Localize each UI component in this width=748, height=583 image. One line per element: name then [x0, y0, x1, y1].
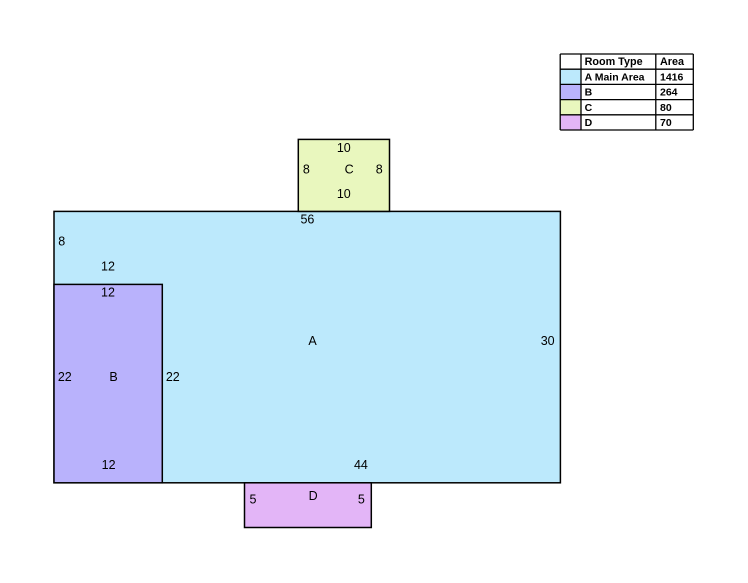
svg-text:8: 8: [58, 234, 65, 248]
svg-text:1416: 1416: [660, 71, 684, 83]
svg-text:10: 10: [337, 187, 351, 201]
svg-text:8: 8: [376, 163, 383, 177]
svg-text:C: C: [585, 102, 593, 114]
svg-text:44: 44: [354, 458, 368, 472]
svg-text:Area: Area: [660, 56, 685, 68]
svg-text:22: 22: [58, 370, 72, 384]
svg-text:56: 56: [300, 212, 314, 226]
svg-text:C: C: [345, 162, 354, 176]
svg-text:12: 12: [101, 260, 115, 274]
svg-text:8: 8: [303, 162, 310, 176]
svg-text:D: D: [309, 489, 318, 503]
svg-text:A: A: [308, 334, 317, 348]
svg-text:B: B: [585, 87, 593, 99]
svg-text:B: B: [109, 370, 117, 384]
svg-text:A Main Area: A Main Area: [585, 71, 645, 83]
svg-text:10: 10: [337, 141, 351, 155]
svg-text:30: 30: [541, 334, 555, 348]
svg-text:12: 12: [102, 458, 116, 472]
svg-text:12: 12: [101, 286, 115, 300]
svg-text:Room Type: Room Type: [585, 56, 643, 68]
svg-text:5: 5: [358, 493, 365, 507]
svg-text:80: 80: [660, 102, 672, 114]
svg-text:264: 264: [660, 87, 678, 99]
svg-text:22: 22: [166, 370, 180, 384]
svg-text:5: 5: [250, 493, 257, 507]
svg-text:70: 70: [660, 117, 672, 129]
svg-text:D: D: [585, 117, 593, 129]
